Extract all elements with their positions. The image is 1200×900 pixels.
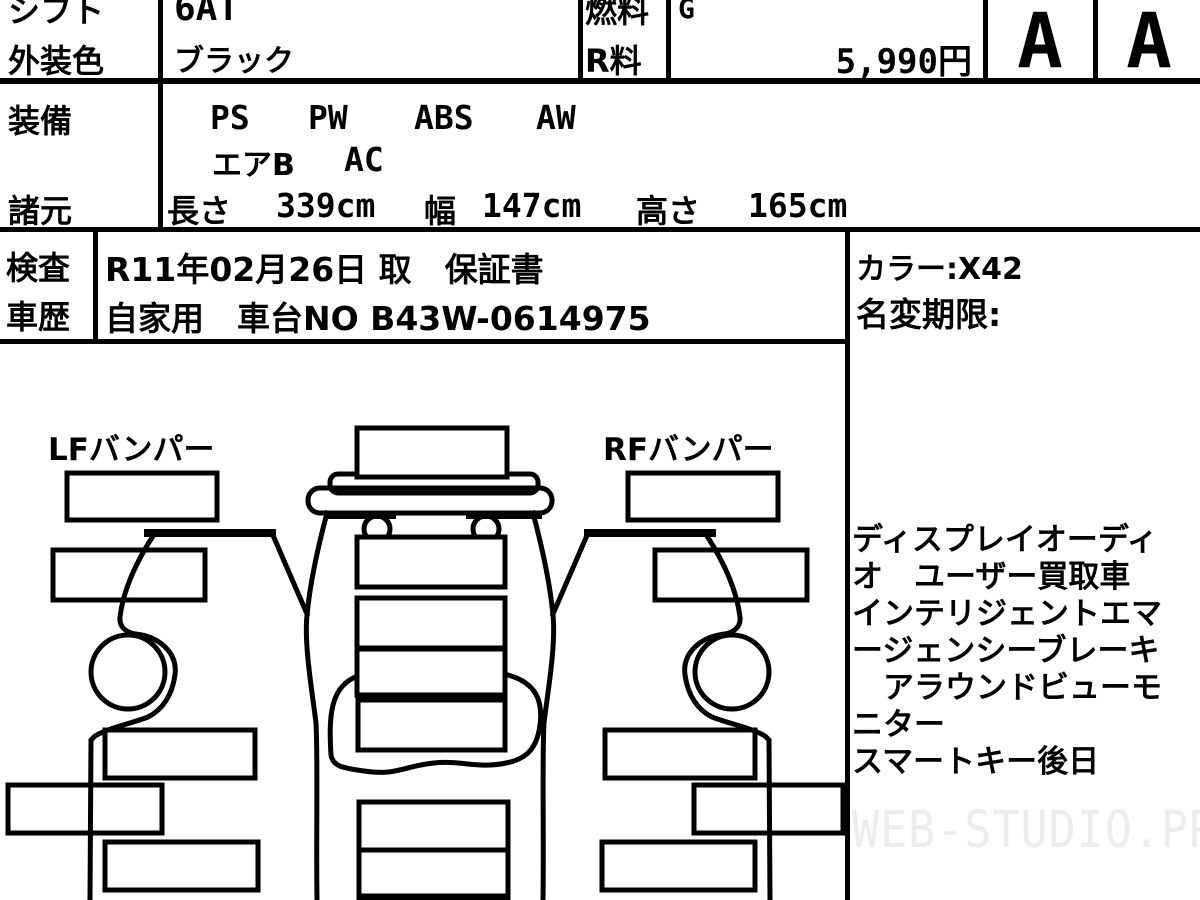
note-box-right-door-3 [602, 842, 755, 890]
recycle-fee-label: R料 [585, 36, 642, 82]
note-box-hood-2 [357, 598, 505, 648]
divider-equipment-col [158, 84, 163, 228]
note-box-right-door-1 [605, 730, 755, 778]
rule-row1-bottom [0, 78, 1200, 84]
grade-interior: A [1098, 0, 1200, 85]
body-left-edge [306, 513, 327, 900]
spec-width-value: 147cm [482, 186, 581, 225]
fuel-label: 燃料 [585, 0, 649, 32]
note-box-left-door-1 [105, 730, 255, 778]
inspection-label: 検査 [6, 243, 70, 289]
left-wheel [91, 635, 165, 709]
note-line-6: ニター [852, 707, 1197, 744]
auction-sheet: { "header": { "shift": { "label": "シフト",… [0, 0, 1200, 900]
note-box-lf-bumper [67, 473, 217, 520]
body-right-edge [533, 513, 554, 900]
note-line-4: ージェンシーブレーキ [852, 633, 1197, 670]
equipment-airbag: エアB [212, 140, 295, 184]
equipment-pw: PW [308, 98, 348, 137]
spec-length-label: 長さ [167, 186, 231, 232]
note-line-7: スマートキー後日 [852, 744, 1197, 781]
right-side-diagonal [553, 533, 588, 614]
rf-bumper-label: RFバンパー [603, 432, 774, 468]
spec-height-label: 高さ [636, 186, 700, 232]
note-box-rf-fender [655, 550, 807, 600]
grade-overall: A [988, 0, 1092, 85]
history-value: 自家用 車台NO B43W-0614975 [105, 292, 651, 340]
note-box-left-door-2 [8, 785, 162, 833]
divider-grade2 [1093, 0, 1098, 80]
note-box-left-door-3 [105, 842, 258, 890]
note-box-lf-fender [53, 550, 205, 600]
equipment-ac: AC [344, 140, 384, 179]
history-label: 車歴 [6, 292, 70, 338]
note-box-front-top [357, 428, 507, 477]
divider-grade1 [983, 0, 988, 80]
note-box-hood-1 [357, 537, 505, 587]
note-box-roof-2 [359, 850, 508, 898]
left-side-diagonal [272, 533, 307, 614]
notes-panel: ディスプレイオーディ オ ユーザー買取車 インテリジェントエマ ージェンシーブレ… [852, 522, 1197, 781]
car-diagram: LFバンパー RFバンパー [0, 340, 848, 900]
color-code: カラー:X42 [856, 244, 1023, 288]
note-line-5: アラウンドビューモ [852, 670, 1197, 707]
name-change-deadline: 名変期限: [856, 288, 1001, 336]
shift-label: シフト [8, 0, 104, 32]
specs-label: 諸元 [8, 186, 72, 232]
right-wheel [695, 635, 769, 709]
note-box-windshield [358, 700, 505, 750]
divider-fuel-col [578, 0, 583, 80]
exterior-color-label: 外装色 [8, 36, 104, 82]
shift-value: 6AT [174, 0, 239, 29]
equipment-label: 装備 [8, 96, 72, 142]
note-line-1: ディスプレイオーディ [852, 522, 1197, 559]
note-line-2: オ ユーザー買取車 [852, 559, 1197, 596]
equipment-ps: PS [210, 98, 250, 137]
spec-width-label: 幅 [424, 186, 456, 232]
divider-fuel-value [666, 0, 671, 80]
note-box-rf-bumper [628, 473, 778, 520]
note-box-cowl [357, 649, 505, 695]
exterior-color-value: ブラック [174, 36, 294, 80]
watermark: WEB-STUDIO.PRO [852, 800, 1200, 859]
inspection-value: R11年02月26日 取 保証書 [105, 243, 544, 291]
spec-height-value: 165cm [748, 186, 847, 225]
rule-row2-bottom [0, 227, 1200, 232]
equipment-aw: AW [536, 98, 576, 137]
note-box-roof-1 [359, 802, 508, 850]
recycle-fee-value: 5,990円 [700, 34, 972, 83]
note-line-3: インテリジェントエマ [852, 596, 1197, 633]
equipment-abs: ABS [414, 98, 474, 137]
divider-shift-col [158, 0, 163, 80]
fuel-value: G [678, 0, 695, 25]
spec-length-value: 339cm [276, 186, 375, 225]
divider-inspection-col [93, 232, 98, 340]
lf-bumper-label: LFバンパー [48, 432, 214, 468]
